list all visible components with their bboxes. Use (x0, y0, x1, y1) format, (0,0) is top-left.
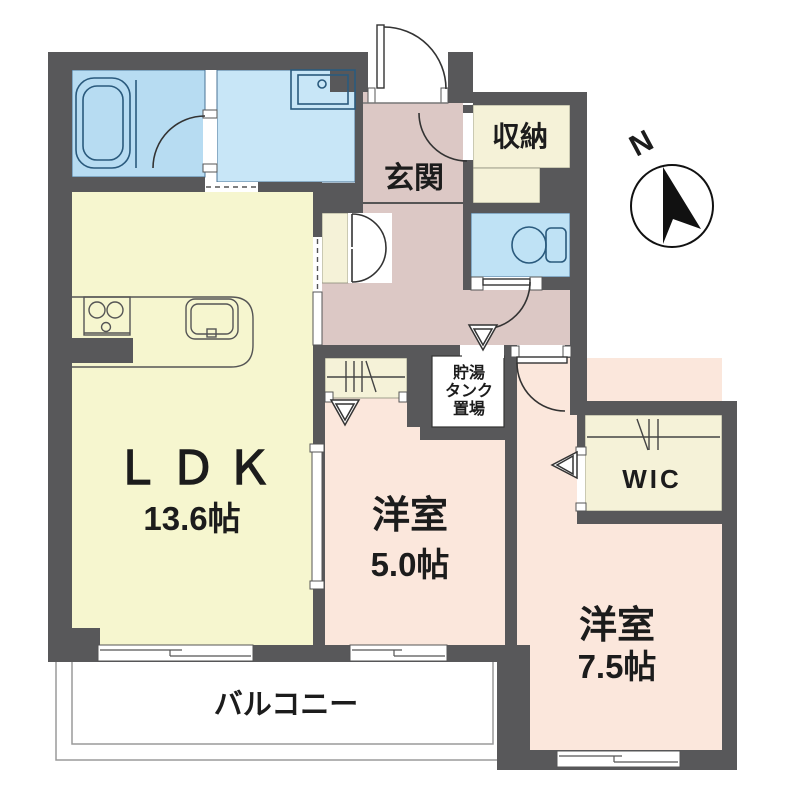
window-ldk (98, 645, 253, 661)
room-shunou-lower (473, 168, 540, 203)
floor-plan: N ＬＤＫ 13.6帖 洋室 5.0帖 洋室 7.5帖 玄関 収納 WIC 貯湯… (0, 0, 800, 800)
tank-label-2: タンク (445, 382, 493, 400)
north-label: N (624, 124, 659, 163)
balcony-label: バルコニー (214, 689, 358, 721)
room-ldk (72, 192, 313, 645)
ldk-size: 13.6帖 (143, 500, 240, 537)
bedroom2-size: 7.5帖 (578, 648, 657, 685)
room-wic (585, 415, 722, 511)
bedroom1-label: 洋室 (372, 494, 448, 537)
bedroom1-closet (325, 358, 407, 398)
genkan-label: 玄関 (384, 161, 444, 195)
bedroom2-label: 洋室 (579, 604, 655, 647)
entrance-door (377, 25, 446, 89)
floor-plan-page: N ＬＤＫ 13.6帖 洋室 5.0帖 洋室 7.5帖 玄関 収納 WIC 貯湯… (0, 0, 800, 800)
room-toilet (471, 213, 570, 277)
window-bedroom1 (350, 645, 447, 661)
hall-closet (322, 213, 348, 283)
bedroom1-size: 5.0帖 (371, 546, 450, 583)
wic-label: WIC (622, 464, 682, 494)
tank-label-3: 置場 (453, 400, 485, 418)
ldk-label: ＬＤＫ (114, 442, 282, 494)
window-bedroom2 (557, 751, 680, 767)
north-compass: N (624, 124, 713, 247)
shunou-label: 収納 (492, 120, 548, 152)
tank-label-1: 貯湯 (453, 363, 485, 382)
